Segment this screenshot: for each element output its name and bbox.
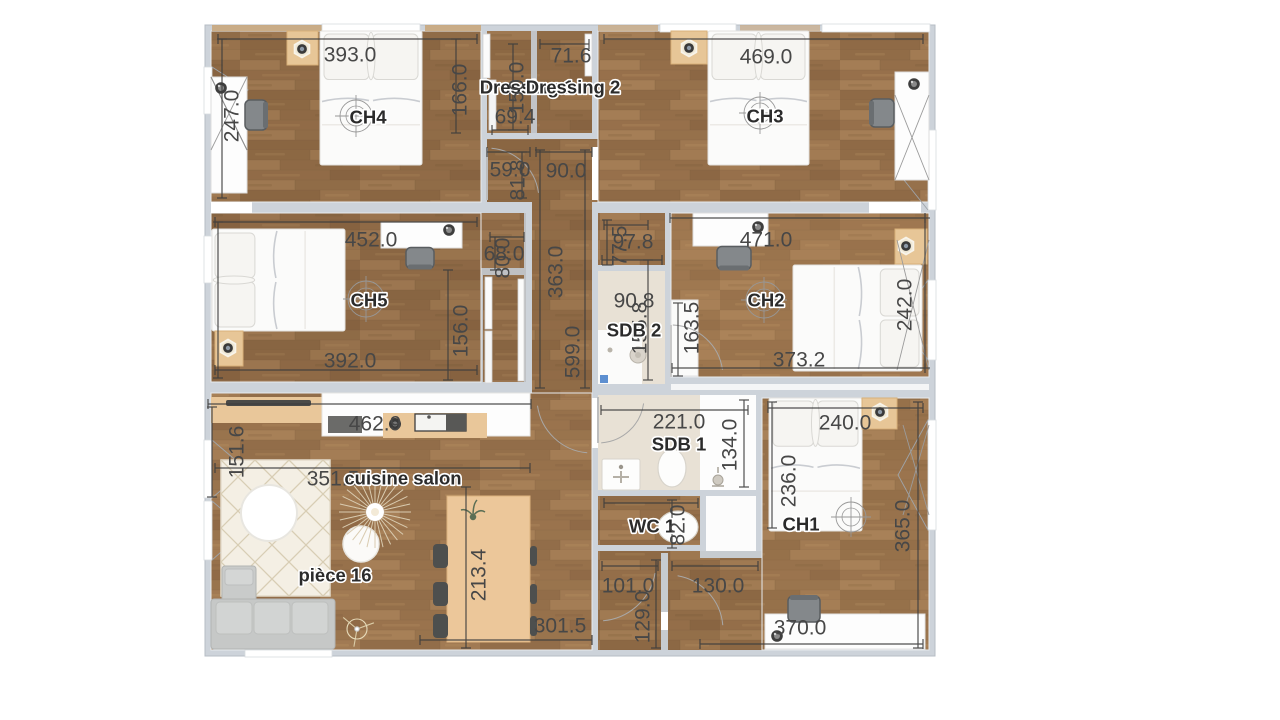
svg-text:471.0: 471.0 [740,229,793,252]
svg-text:69.4: 69.4 [495,106,536,129]
svg-text:156.0: 156.0 [450,305,473,358]
svg-text:cuisine salon: cuisine salon [344,468,461,489]
svg-text:CH3: CH3 [746,106,783,127]
svg-text:221.0: 221.0 [653,411,706,434]
svg-text:163.5: 163.5 [681,302,704,355]
svg-text:82.0: 82.0 [667,505,690,546]
svg-text:SDB 2: SDB 2 [607,320,662,341]
svg-text:599.0: 599.0 [562,326,585,379]
svg-text:452.0: 452.0 [345,229,398,252]
svg-text:90.0: 90.0 [546,160,587,183]
svg-text:71.6: 71.6 [551,45,592,68]
svg-text:236.0: 236.0 [778,455,801,508]
svg-text:247.0: 247.0 [221,90,244,143]
svg-text:151.6: 151.6 [226,426,249,479]
svg-text:370.0: 370.0 [774,617,827,640]
svg-text:393.0: 393.0 [324,44,377,67]
svg-text:469.0: 469.0 [740,46,793,69]
svg-text:CH1: CH1 [782,514,819,535]
svg-text:pièce 16: pièce 16 [298,565,371,586]
svg-text:CH5: CH5 [350,290,387,311]
svg-text:Dressing 2: Dressing 2 [526,77,621,98]
svg-text:213.4: 213.4 [468,548,491,601]
svg-text:CH4: CH4 [349,107,387,128]
svg-text:363.0: 363.0 [545,246,568,299]
svg-text:365.0: 365.0 [892,500,915,553]
svg-text:SDB 1: SDB 1 [652,434,707,455]
svg-text:CH2: CH2 [747,290,784,311]
svg-text:166.0: 166.0 [449,64,472,117]
svg-text:240.0: 240.0 [819,412,872,435]
svg-text:242.0: 242.0 [894,279,917,332]
svg-text:81.8: 81.8 [507,160,530,201]
svg-text:77.5: 77.5 [609,226,632,267]
svg-text:462.9: 462.9 [349,413,402,436]
svg-text:134.0: 134.0 [719,419,742,472]
svg-text:130.0: 130.0 [692,575,745,598]
svg-text:129.0: 129.0 [632,591,655,644]
svg-text:80.0: 80.0 [492,238,515,279]
svg-text:392.0: 392.0 [324,350,377,373]
svg-text:301.5: 301.5 [534,615,587,638]
svg-text:373.2: 373.2 [773,349,826,372]
